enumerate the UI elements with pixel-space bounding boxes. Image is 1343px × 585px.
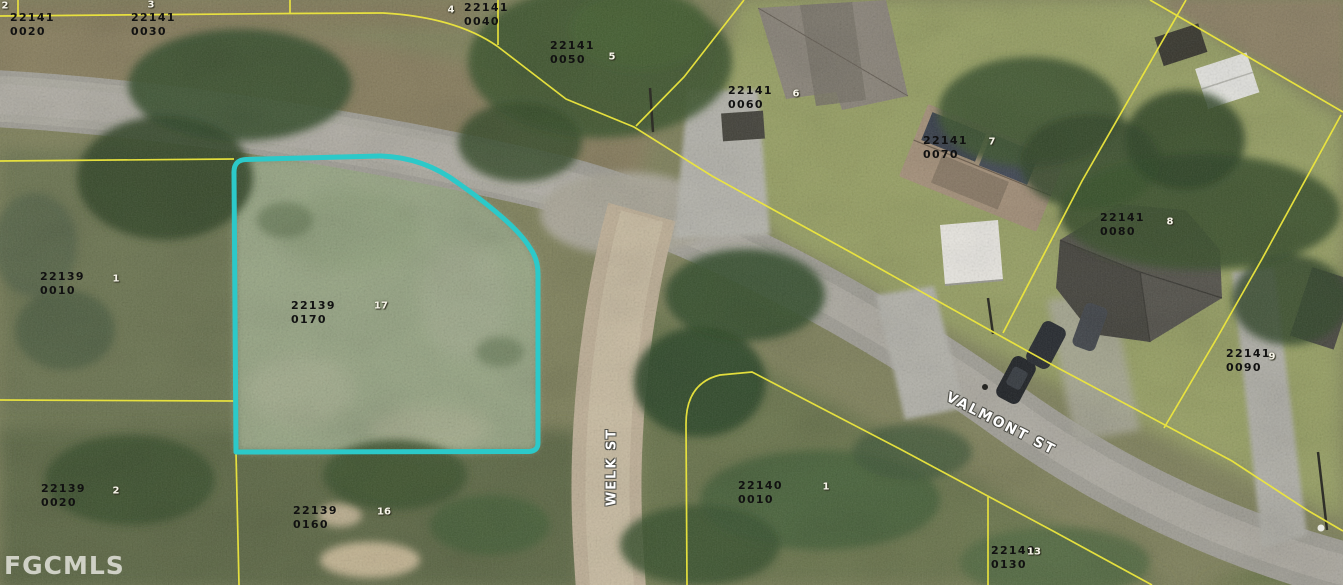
map-viewport[interactable]: 22141 0020 22141 0030 22141 0040 22141 0… [0,0,1343,585]
aerial-imagery [0,0,1343,585]
